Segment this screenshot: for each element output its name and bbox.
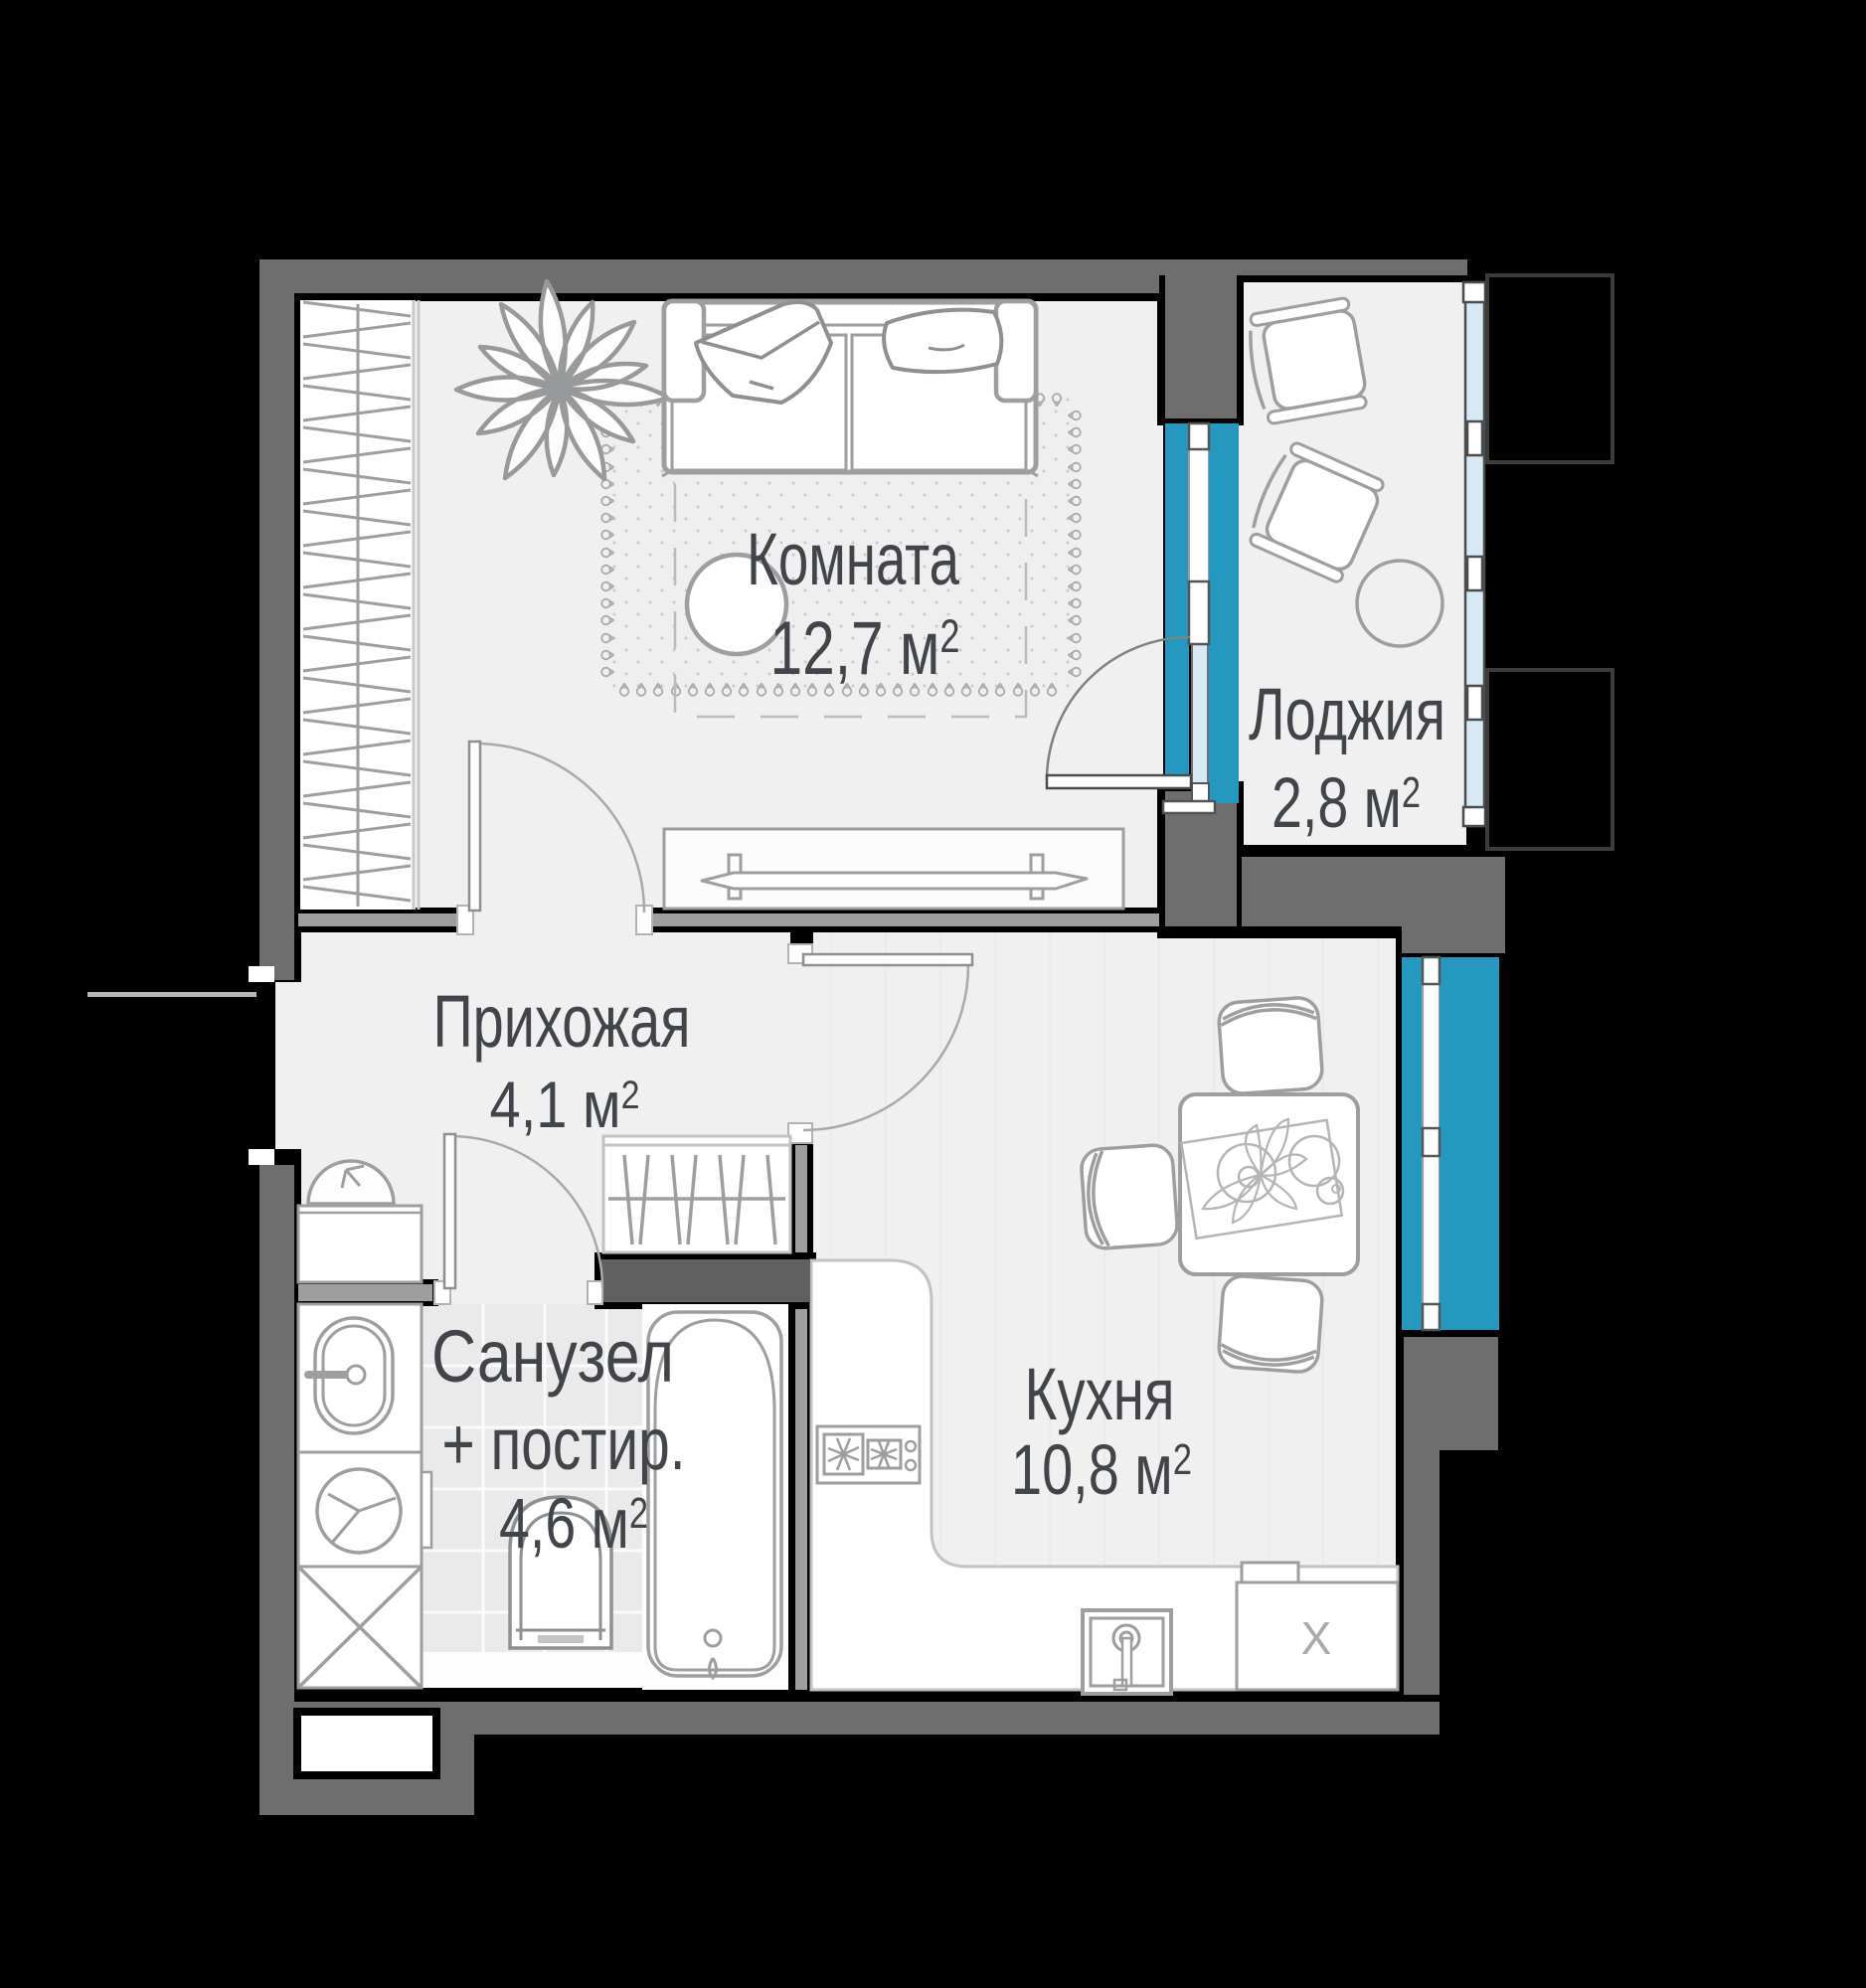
svg-text:Комната: Комната	[747, 518, 960, 600]
svg-text:Лоджия: Лоджия	[1249, 673, 1445, 755]
svg-text:4,1 м2: 4,1 м2	[490, 1068, 640, 1141]
svg-text:12,7 м2: 12,7 м2	[770, 606, 960, 691]
svg-text:2,8 м2: 2,8 м2	[1272, 764, 1421, 843]
svg-text:10,8 м2: 10,8 м2	[1011, 1431, 1192, 1510]
svg-text:Санузел: Санузел	[431, 1315, 674, 1398]
svg-text:+ постир.: + постир.	[442, 1403, 686, 1485]
svg-text:Кухня: Кухня	[1025, 1353, 1175, 1435]
svg-text:X: X	[1301, 1612, 1332, 1664]
svg-text:Прихожая: Прихожая	[433, 980, 691, 1063]
svg-text:4,6 м2: 4,6 м2	[499, 1485, 648, 1564]
